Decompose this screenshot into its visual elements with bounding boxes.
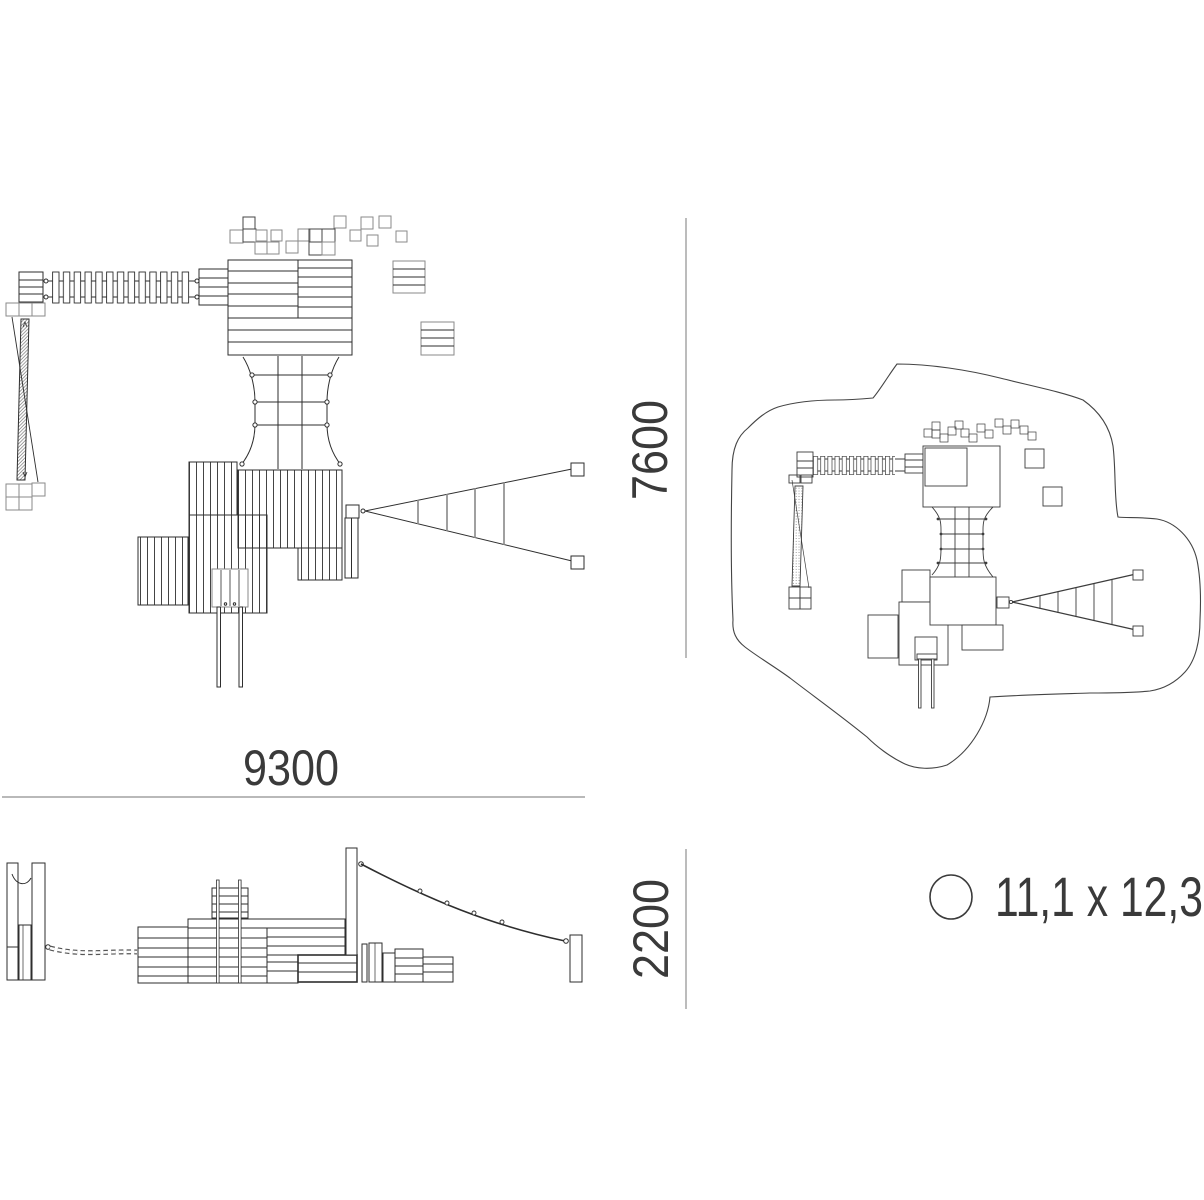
elevation-chain [46, 945, 137, 953]
dimension-height-label: 2200 [623, 879, 679, 979]
deck-center [238, 470, 342, 548]
elevation-posts-right [362, 943, 453, 982]
slide-rail [239, 607, 243, 687]
rope-anchor [571, 463, 584, 476]
slatted-platform-1 [393, 261, 425, 293]
ramp-anchors-top [6, 303, 45, 316]
net-tower [240, 356, 342, 469]
rope-anchor-post [346, 505, 359, 518]
slide-rail [217, 607, 221, 687]
dark-deck [298, 955, 357, 982]
footprint-view [731, 364, 1200, 768]
zip-post [346, 848, 357, 955]
main-deck [228, 260, 352, 355]
plank-bridge [19, 269, 228, 305]
slatted-platform-2 [421, 322, 454, 355]
mini-structure [868, 446, 1003, 708]
climbing-ramp [6, 303, 45, 510]
mini-rope-climber [997, 570, 1143, 636]
mini-ramp [789, 475, 812, 609]
deck-left-upper [189, 462, 237, 515]
circle-icon [930, 875, 972, 919]
footprint-size-label: 11,1 x 12,3 [995, 865, 1203, 928]
footprint-label: 11,1 x 12,3 [930, 865, 1203, 928]
deck-far-left [138, 537, 188, 605]
elevation-view [7, 848, 582, 983]
mini-stepping-stones [924, 419, 1036, 442]
mini-platform-1 [1025, 449, 1044, 468]
mini-bridge [797, 452, 923, 477]
deck-center-lower [298, 548, 342, 580]
dimension-depth-label: 7600 [622, 400, 678, 500]
zip-anchor-post [570, 935, 582, 982]
lower-decks [138, 462, 359, 687]
elevation-ramp-end [7, 863, 45, 980]
plan-view [6, 216, 584, 687]
stepping-stones [230, 216, 407, 255]
mini-platform-2 [1043, 487, 1062, 506]
slide [212, 569, 248, 687]
safety-area-outline [731, 364, 1200, 768]
rope-anchor [571, 556, 584, 569]
rope-climber [361, 463, 584, 569]
drawing-sheet: 9300 7600 2200 11,1 x 12,3 [0, 0, 1204, 1200]
ramp-anchors-bottom [6, 483, 45, 510]
elevation-decks [138, 919, 357, 983]
playground-technical-drawing: 9300 7600 2200 11,1 x 12,3 [0, 0, 1204, 1200]
dimension-width-label: 9300 [243, 740, 339, 796]
